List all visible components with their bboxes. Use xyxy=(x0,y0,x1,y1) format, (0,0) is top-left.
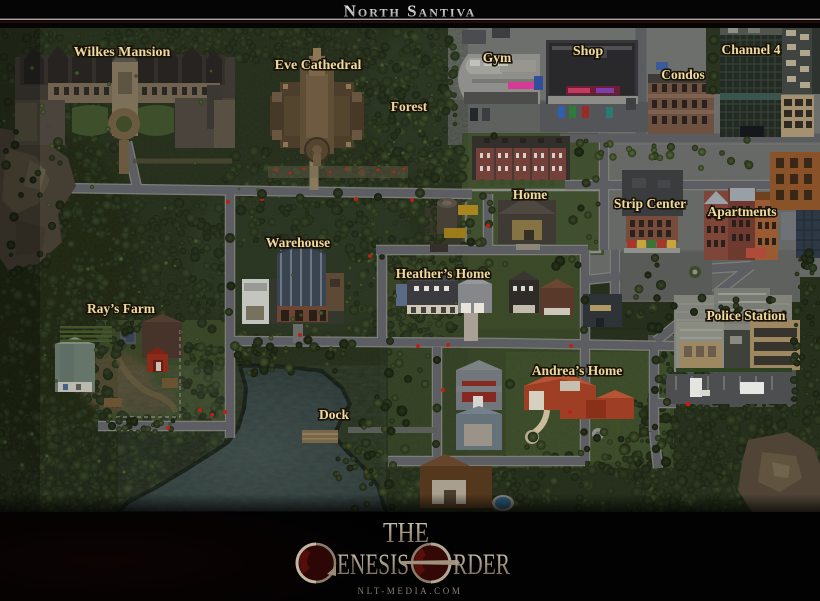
svg-text:Shop: Shop xyxy=(573,44,604,59)
svg-text:NLT-MEDIA.COM: NLT-MEDIA.COM xyxy=(358,586,463,596)
svg-text:Police Station: Police Station xyxy=(706,308,786,323)
svg-text:Gym: Gym xyxy=(483,50,512,65)
svg-text:Eve Cathedral: Eve Cathedral xyxy=(275,58,362,73)
svg-text:Forest: Forest xyxy=(391,99,428,114)
svg-text:Andrea’s Home: Andrea’s Home xyxy=(532,363,622,378)
svg-text:Warehouse: Warehouse xyxy=(266,235,330,250)
svg-text:RDER: RDER xyxy=(453,548,510,581)
svg-text:Home: Home xyxy=(513,187,548,202)
svg-text:ENESIS: ENESIS xyxy=(337,548,409,581)
svg-text:Channel 4: Channel 4 xyxy=(722,42,781,57)
svg-text:THE: THE xyxy=(383,518,429,549)
svg-text:Wilkes Mansion: Wilkes Mansion xyxy=(74,45,171,60)
svg-text:Condos: Condos xyxy=(661,67,705,82)
svg-text:Strip Center: Strip Center xyxy=(614,196,686,211)
svg-text:Dock: Dock xyxy=(319,407,349,422)
svg-text:Ray’s Farm: Ray’s Farm xyxy=(87,301,156,316)
svg-text:Apartments: Apartments xyxy=(708,204,777,219)
svg-text:North Santiva: North Santiva xyxy=(344,2,477,21)
svg-text:Heather’s Home: Heather’s Home xyxy=(396,266,491,281)
